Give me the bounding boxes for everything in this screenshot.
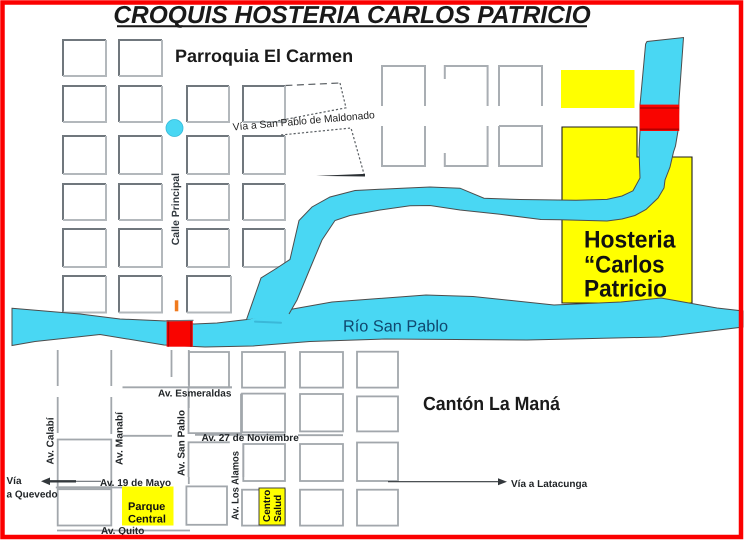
- svg-text:Av. San Pablo: Av. San Pablo: [177, 410, 188, 476]
- svg-text:a Quevedo: a Quevedo: [7, 490, 58, 501]
- svg-text:Salud: Salud: [273, 495, 284, 522]
- svg-text:Av. Esmeraldas: Av. Esmeraldas: [158, 389, 232, 400]
- svg-text:Av. Los Alamos: Av. Los Alamos: [231, 451, 242, 520]
- svg-text:Central: Central: [128, 514, 166, 526]
- svg-text:Patricio: Patricio: [584, 276, 667, 303]
- svg-text:Cantón La Maná: Cantón La Maná: [423, 394, 560, 415]
- svg-text:Parque: Parque: [128, 501, 165, 513]
- svg-text:Calle Principal: Calle Principal: [170, 173, 182, 245]
- svg-text:Av. Calabí: Av. Calabí: [46, 416, 57, 464]
- svg-text:Av. Manabí: Av. Manabí: [115, 411, 126, 465]
- svg-text:Centro: Centro: [262, 490, 273, 522]
- svg-text:Vía a Latacunga: Vía a Latacunga: [511, 479, 588, 490]
- svg-text:“Carlos: “Carlos: [584, 251, 665, 278]
- svg-text:Av. 27 de Noviembre: Av. 27 de Noviembre: [202, 433, 300, 444]
- svg-text:Parroquia El Carmen: Parroquia El Carmen: [175, 46, 353, 66]
- svg-text:Río San Pablo: Río San Pablo: [343, 318, 448, 336]
- svg-text:Hosteria: Hosteria: [584, 227, 676, 254]
- svg-text:CROQUIS HOSTERIA CARLOS PATRIC: CROQUIS HOSTERIA CARLOS PATRICIO: [113, 2, 590, 29]
- svg-text:Vía: Vía: [7, 476, 22, 487]
- svg-text:Av. 19 de Mayo: Av. 19 de Mayo: [100, 478, 171, 489]
